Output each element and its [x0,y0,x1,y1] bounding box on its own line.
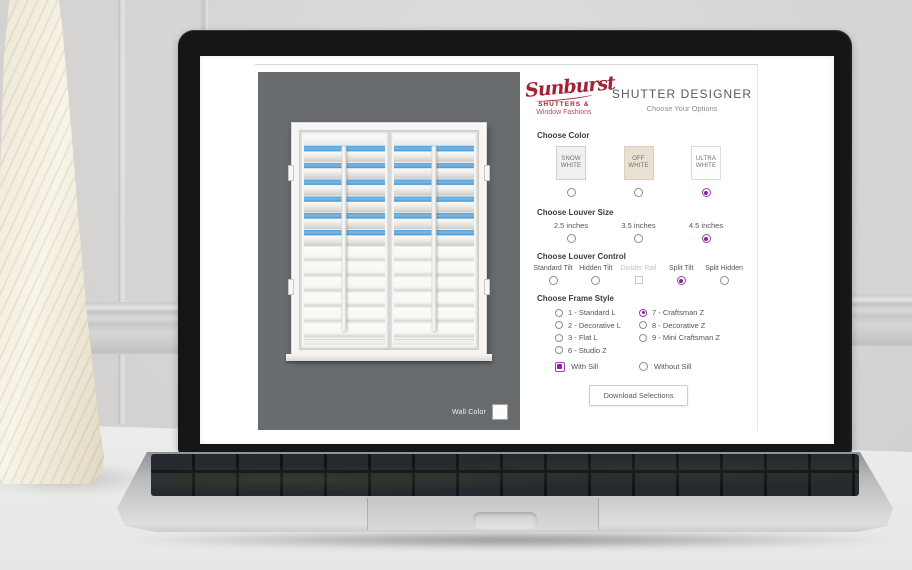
page-title: SHUTTER DESIGNER [612,87,752,101]
tilt-rod [342,146,347,331]
louver-control-row: Standard Tilt Hidden Tilt Divider Rail [520,261,757,285]
standard-l-label: 1 - Standard L [568,308,616,317]
standard-tilt-radio[interactable] [549,276,558,285]
size-3-5-label[interactable]: 3.5 inches [621,221,655,230]
split-tilt-radio[interactable] [677,276,686,285]
split-hidden-radio[interactable] [720,276,729,285]
color-option-snow-white: SNOW WHITE [543,146,599,197]
size-4-5-label[interactable]: 4.5 inches [689,221,723,230]
laptop-shadow [128,531,894,549]
logo-window-fashions-text: Window Fashions [525,109,603,116]
laptop-lid-notch [473,512,537,529]
bottom-rail [394,339,475,345]
window-sill [286,354,492,361]
choose-color-label: Choose Color [537,131,757,140]
wall-color-swatch[interactable] [492,404,508,420]
color-swatch-row: SNOW WHITE OFF WHITE ULTRA WHITE [520,140,757,197]
options-panel: Sunburst SHUTTERS & Window Fashions SHUT… [520,65,758,431]
divider-rail-label: Divider Rail [621,264,657,273]
standard-l-radio[interactable] [555,309,563,317]
laptop-screen: Wall Color Sunburst SHUTTERS & Window Fa… [200,56,834,444]
tilt-rod [431,146,436,331]
frame-option-studio-z[interactable]: 6 - Studio Z [555,346,625,355]
off-white-swatch[interactable]: OFF WHITE [624,146,654,180]
frame-style-columns: 1 - Standard L 2 - Decorative L 3 - Flat… [520,303,757,355]
snow-white-radio[interactable] [567,188,576,197]
shutter-panel-right [391,132,478,348]
size-option-4-5: 4.5 inches [678,221,734,243]
craftsman-z-label: 7 - Craftsman Z [652,308,704,317]
studio-z-label: 6 - Studio Z [568,346,607,355]
shutter-panel-left [301,132,388,348]
control-option-split-tilt: Split Tilt [661,264,701,285]
frame-option-decorative-l[interactable]: 2 - Decorative L [555,321,625,330]
top-rail [304,135,385,146]
decorative-l-radio[interactable] [555,321,563,329]
hinge [288,165,294,181]
color-option-off-white: OFF WHITE [611,146,667,197]
wall-color-label: Wall Color [452,409,486,416]
section-choose-frame-style: Choose Frame Style 1 - Standard L 2 - De… [520,294,757,355]
ultra-white-swatch[interactable]: ULTRA WHITE [691,146,721,180]
hidden-tilt-label[interactable]: Hidden Tilt [579,264,612,273]
split-tilt-label[interactable]: Split Tilt [669,264,694,273]
without-sill-option[interactable]: Without Sill [639,362,692,372]
download-selections-button[interactable]: Download Selections [589,385,687,406]
flat-l-label: 3 - Flat L [568,333,598,342]
choose-frame-style-label: Choose Frame Style [537,294,757,303]
standard-tilt-label[interactable]: Standard Tilt [533,264,572,273]
choose-louver-size-label: Choose Louver Size [537,208,757,217]
off-white-radio[interactable] [634,188,643,197]
with-sill-label: With Sill [571,362,598,371]
without-sill-label: Without Sill [654,362,692,371]
mini-craftsman-z-radio[interactable] [639,334,647,342]
with-sill-option[interactable]: With Sill [555,362,625,372]
hinge [288,279,294,295]
shutter-preview-window [291,122,487,358]
decorative-z-label: 8 - Decorative Z [652,321,705,330]
control-option-divider-rail: Divider Rail [619,264,659,285]
frame-option-flat-l[interactable]: 3 - Flat L [555,333,625,342]
laptop-keyboard-deck [115,452,895,536]
shutter-preview-panel: Wall Color [258,72,520,430]
with-sill-checkbox[interactable] [555,362,565,372]
section-choose-louver-control: Choose Louver Control Standard Tilt Hidd… [520,252,757,285]
frame-option-standard-l[interactable]: 1 - Standard L [555,308,625,317]
snow-white-swatch[interactable]: SNOW WHITE [556,146,586,180]
frame-option-mini-craftsman-z[interactable]: 9 - Mini Craftsman Z [639,333,720,342]
divider-rail-checkbox[interactable] [635,276,643,284]
mini-craftsman-z-label: 9 - Mini Craftsman Z [652,333,720,342]
control-option-hidden-tilt: Hidden Tilt [576,264,616,285]
studio-z-radio[interactable] [555,346,563,354]
ultra-white-radio[interactable] [702,188,711,197]
louver-size-row: 2.5 inches 3.5 inches 4.5 inches [520,217,757,243]
logo-shutters-text: SHUTTERS & [525,101,603,108]
app-header: Sunburst SHUTTERS & Window Fashions SHUT… [520,65,757,120]
top-rail [394,135,475,146]
size-4-5-radio[interactable] [702,234,711,243]
decorative-l-label: 2 - Decorative L [568,321,621,330]
sill-option-row: With Sill Without Sill [520,355,757,372]
shutter-designer-app: Wall Color Sunburst SHUTTERS & Window Fa… [255,64,758,430]
bottom-rail [304,339,385,345]
size-option-3-5: 3.5 inches [611,221,667,243]
control-option-standard-tilt: Standard Tilt [533,264,573,285]
laptop-keyboard [151,454,859,496]
split-hidden-label[interactable]: Split Hidden [705,264,743,273]
frame-option-craftsman-z[interactable]: 7 - Craftsman Z [639,308,720,317]
choose-louver-control-label: Choose Louver Control [537,252,757,261]
hinge [484,279,490,295]
hidden-tilt-radio[interactable] [591,276,600,285]
hinge [484,165,490,181]
shutter-panels [299,130,479,350]
size-2-5-label[interactable]: 2.5 inches [554,221,588,230]
control-option-split-hidden: Split Hidden [704,264,744,285]
size-3-5-radio[interactable] [634,234,643,243]
craftsman-z-radio[interactable] [639,309,647,317]
frame-option-decorative-z[interactable]: 8 - Decorative Z [639,321,720,330]
title-block: SHUTTER DESIGNER Choose Your Options [612,78,752,113]
frame-style-column-1: 1 - Standard L 2 - Decorative L 3 - Flat… [555,308,625,355]
size-option-2-5: 2.5 inches [543,221,599,243]
decorative-z-radio[interactable] [639,321,647,329]
scene: Wall Color Sunburst SHUTTERS & Window Fa… [0,0,912,570]
page-subtitle: Choose Your Options [612,104,752,113]
flat-l-radio[interactable] [555,334,563,342]
section-choose-color: Choose Color SNOW WHITE OFF WHITE ULTRA … [520,131,757,197]
wall-color-control: Wall Color [452,404,508,420]
section-choose-louver-size: Choose Louver Size 2.5 inches 3.5 inches… [520,208,757,243]
color-option-ultra-white: ULTRA WHITE [678,146,734,197]
without-sill-radio[interactable] [639,362,648,371]
sunburst-logo: Sunburst SHUTTERS & Window Fashions [525,78,603,116]
size-2-5-radio[interactable] [567,234,576,243]
frame-style-column-2: 7 - Craftsman Z 8 - Decorative Z 9 - Min… [639,308,720,355]
